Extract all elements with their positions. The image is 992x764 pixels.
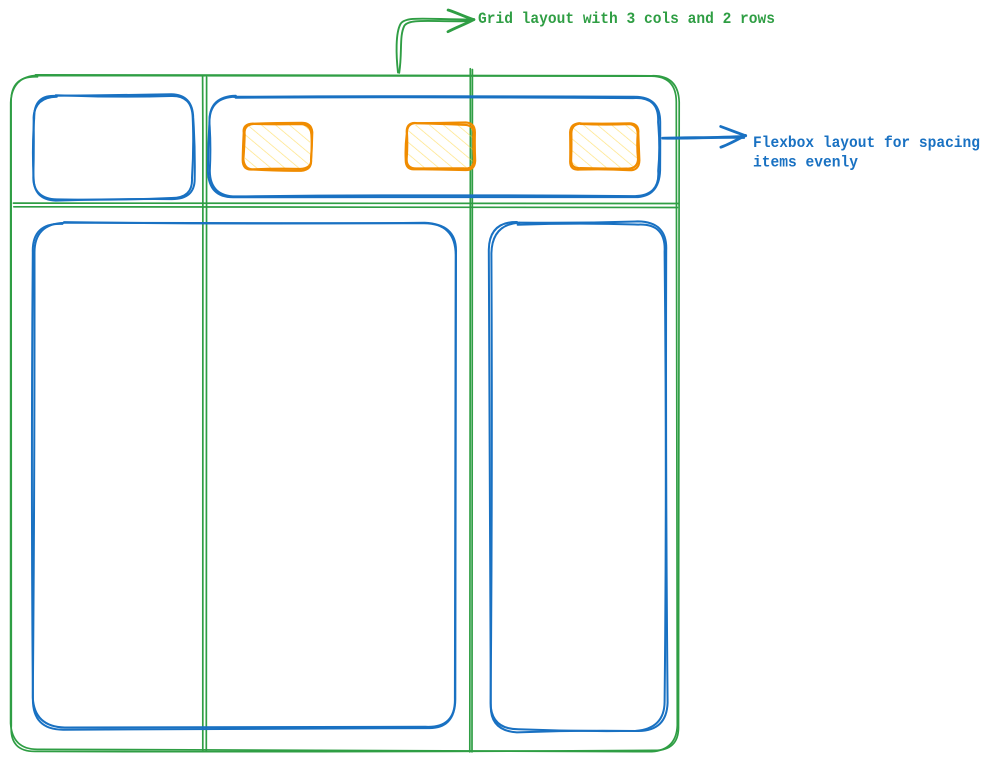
svg-text:items evenly: items evenly <box>753 154 858 172</box>
svg-text:Grid layout with 3 cols and 2: Grid layout with 3 cols and 2 rows <box>478 10 775 28</box>
svg-text:Flexbox layout for spacing: Flexbox layout for spacing <box>753 134 980 152</box>
